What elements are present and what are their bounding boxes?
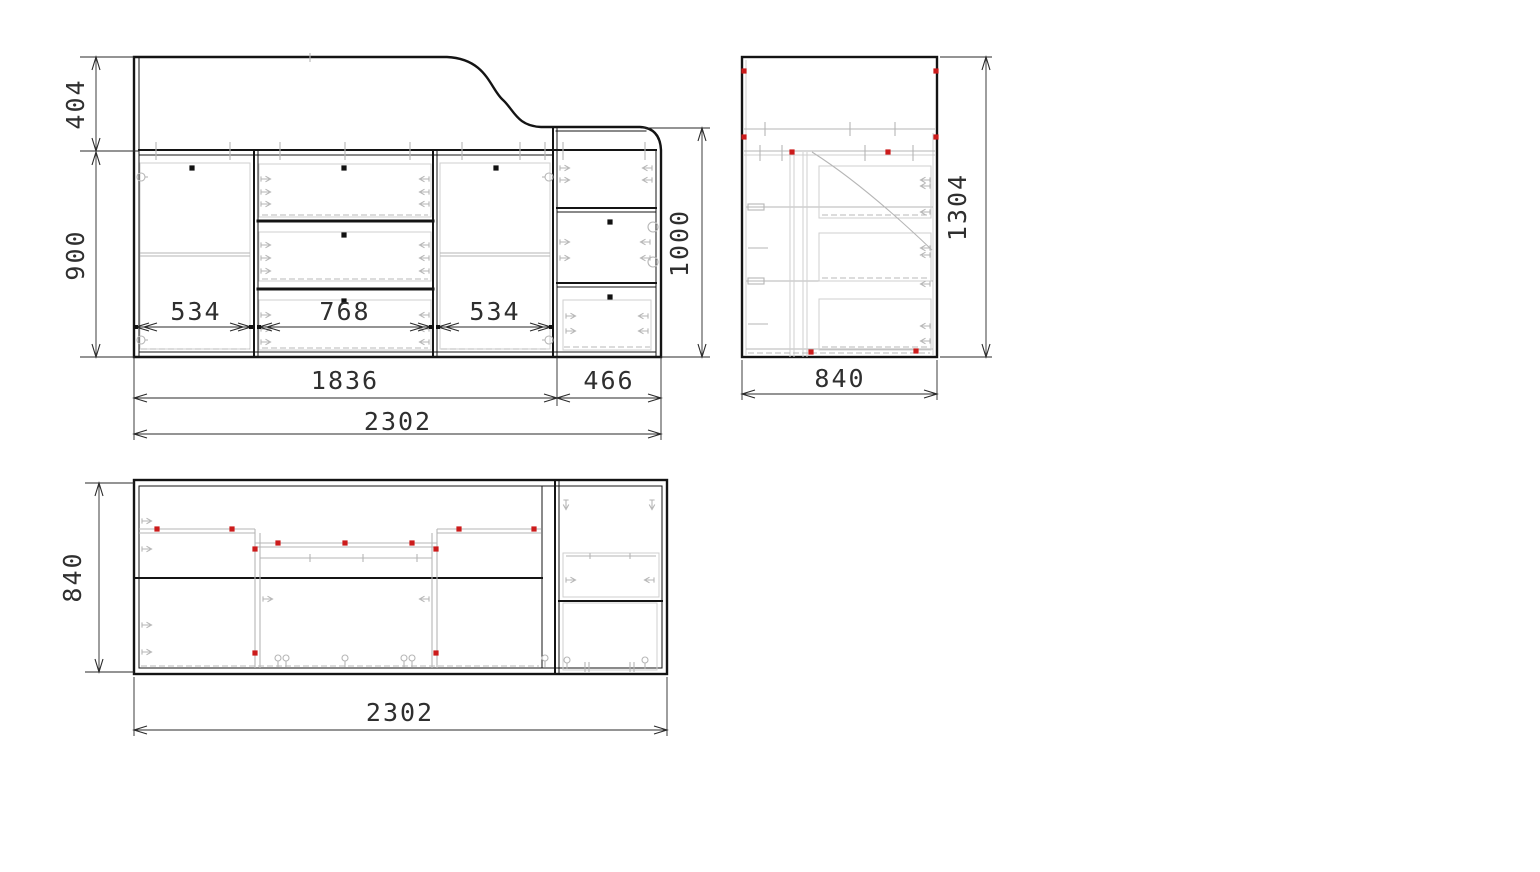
dim-front-left-door-width: 534	[170, 297, 221, 326]
dim-front-upper-height: 404	[61, 78, 90, 129]
dim-plan-total-width: 2302	[366, 698, 434, 727]
dim-front-lower-height: 900	[61, 229, 90, 280]
front-view: 404 900 1000 534 768 534 1836 466 2302	[61, 53, 710, 440]
drawing-sheet: 404 900 1000 534 768 534 1836 466 2302	[0, 0, 1540, 872]
front-handle-dots	[189, 165, 612, 303]
dim-front-right-door-width: 534	[469, 297, 520, 326]
plan-hinge-symbols	[275, 655, 648, 669]
plan-view: 840 2302	[58, 480, 667, 736]
side-view: 1304 840	[741, 57, 992, 400]
cad-canvas: 404 900 1000 534 768 534 1836 466 2302	[0, 0, 1540, 872]
front-dimensions: 404 900 1000 534 768 534 1836 466 2302	[61, 57, 710, 440]
plan-fastener-markers	[154, 526, 536, 655]
dim-front-drawer-bank-width: 768	[319, 297, 370, 326]
dim-front-main-width: 1836	[311, 366, 379, 395]
side-hardware-gray	[744, 60, 935, 357]
side-bed-curve-profile	[812, 152, 932, 250]
dim-side-total-height: 1304	[943, 173, 972, 241]
side-fastener-markers	[741, 68, 938, 354]
plan-carcass-lines	[134, 480, 662, 674]
dim-side-depth: 840	[814, 364, 865, 393]
dim-front-tower-height: 1000	[665, 209, 694, 277]
dim-front-total-width: 2302	[364, 407, 432, 436]
side-screw-symbols	[921, 177, 931, 344]
dim-front-tower-width: 466	[583, 366, 634, 395]
dim-plan-depth: 840	[58, 551, 87, 602]
